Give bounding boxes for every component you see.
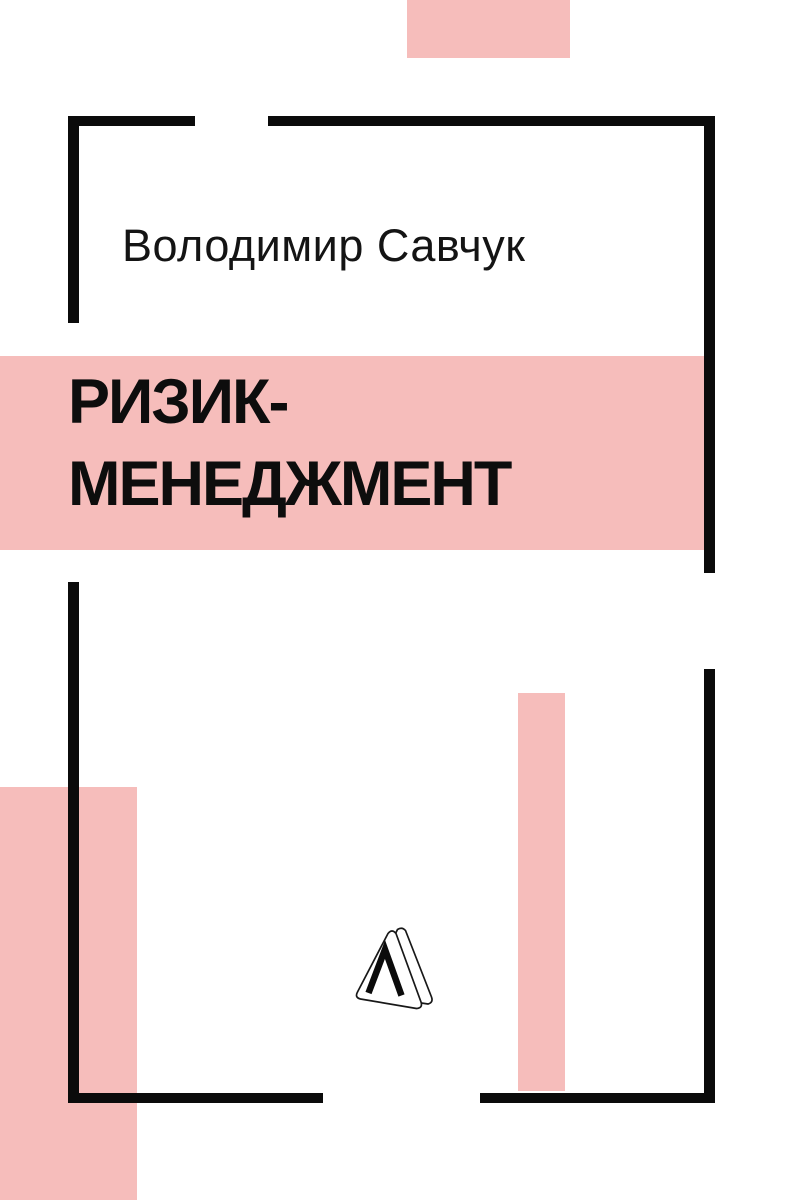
book-title: РИЗИК- МЕНЕДЖМЕНТ: [68, 361, 510, 525]
frame-left-lower-segment: [68, 582, 79, 1103]
book-cover: Володимир Савчук РИЗИК- МЕНЕДЖМЕНТ: [0, 0, 787, 1200]
author-name: Володимир Савчук: [122, 223, 525, 268]
frame-top-left-segment: [68, 116, 195, 126]
book-title-line2: МЕНЕДЖМЕНТ: [68, 443, 510, 525]
frame-right-lower-segment: [704, 669, 715, 1103]
pink-block-top: [407, 0, 570, 58]
frame-left-upper-segment: [68, 116, 79, 323]
book-title-line1: РИЗИК-: [68, 361, 510, 443]
frame-bottom-right-segment: [480, 1093, 715, 1103]
publisher-logo-icon: [352, 924, 436, 1018]
pink-bar-middle: [518, 693, 565, 1091]
frame-right-upper-segment: [704, 116, 715, 573]
frame-bottom-left-segment: [68, 1093, 323, 1103]
frame-top-right-segment: [268, 116, 715, 126]
